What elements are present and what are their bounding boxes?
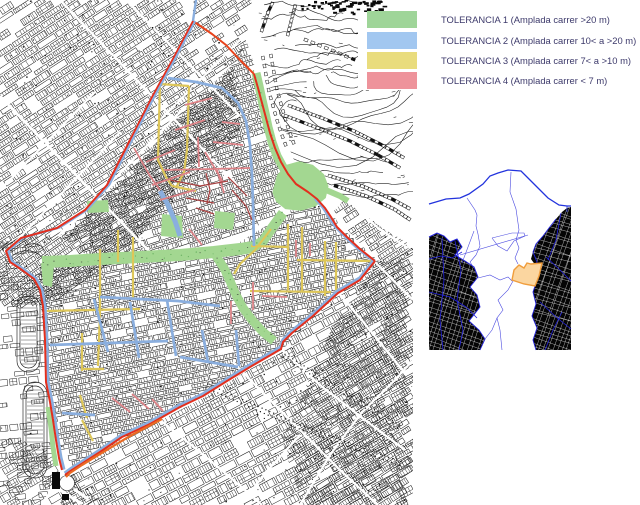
svg-text:TOLERANCIA 4 (Amplada carrer <: TOLERANCIA 4 (Amplada carrer < 7 m): [441, 75, 607, 86]
svg-text:TOLERANCIA 2 (Amplada carrer 1: TOLERANCIA 2 (Amplada carrer 10< a >20 m…: [441, 35, 636, 46]
svg-text:TOLERANCIA 3 (Amplada carrer 7: TOLERANCIA 3 (Amplada carrer 7< a >10 m): [441, 55, 631, 66]
svg-text:TOLERANCIA 1 (Amplada carrer >: TOLERANCIA 1 (Amplada carrer >20 m): [441, 14, 610, 25]
